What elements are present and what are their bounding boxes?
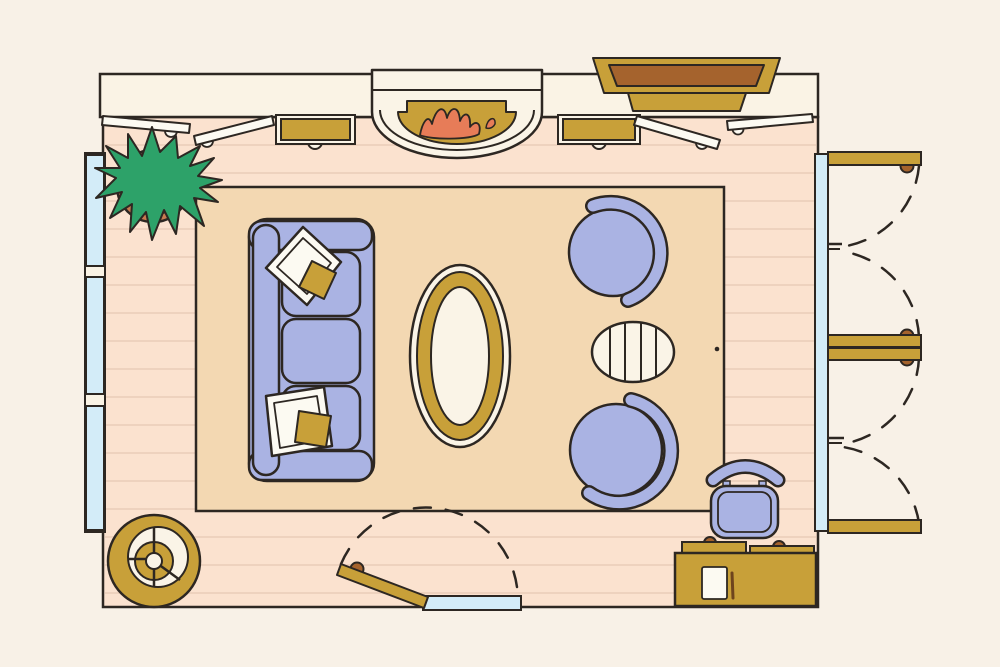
- console-top: [281, 119, 350, 140]
- side-table-center: [146, 553, 162, 569]
- door-threshold: [423, 596, 521, 610]
- bifold-door-top: [828, 152, 921, 165]
- table-top-center: [431, 287, 489, 425]
- fireplace: [372, 70, 542, 158]
- picture-window-3: [86, 406, 104, 530]
- desk: [675, 553, 816, 606]
- console-top: [563, 119, 635, 140]
- tv-base: [628, 93, 746, 111]
- bifold-door-middle-lower: [828, 348, 921, 360]
- picture-window-2: [86, 277, 104, 394]
- round-side-table: [108, 515, 200, 607]
- desk-paper: [702, 567, 727, 599]
- desk-zone: [675, 537, 816, 606]
- glass-wall-right: [815, 154, 828, 531]
- floor-plan-canvas: [0, 0, 1000, 667]
- ottoman-body: [592, 322, 674, 382]
- picture-windows-left: [85, 153, 105, 532]
- ottoman: [592, 322, 674, 382]
- bifold-door-bottom: [828, 520, 921, 533]
- desk-pen: [732, 573, 733, 598]
- pillow-accent: [295, 411, 331, 447]
- rug-dot: [715, 347, 720, 352]
- wall-console-left: [276, 115, 355, 149]
- sofa-cushion-2: [282, 319, 360, 383]
- throw-pillow-2: [266, 387, 332, 456]
- tv-screen: [609, 65, 764, 86]
- wall-console-right: [558, 115, 640, 149]
- armchair-bottom: [570, 400, 671, 503]
- bifold-door-middle-upper: [828, 335, 921, 347]
- coffee-table: [410, 265, 510, 447]
- chair-seat: [570, 404, 662, 496]
- floor-plan-illustration: [0, 0, 1000, 667]
- sofa: [249, 219, 374, 481]
